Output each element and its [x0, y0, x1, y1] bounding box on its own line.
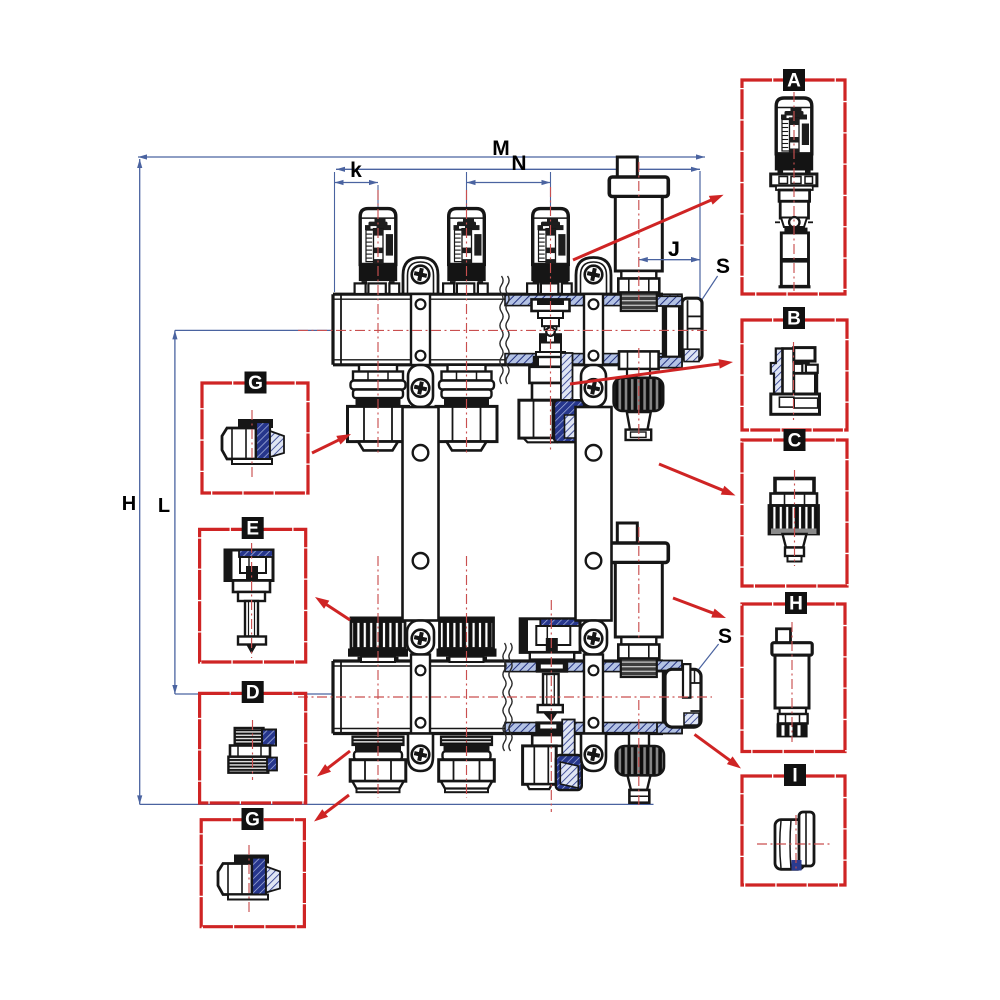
svg-text:J: J — [668, 238, 680, 261]
svg-text:G: G — [245, 810, 260, 831]
svg-text:H: H — [122, 493, 136, 515]
svg-text:C: C — [788, 431, 802, 452]
svg-text:M: M — [492, 137, 510, 160]
svg-text:B: B — [787, 309, 801, 330]
svg-text:I: I — [792, 766, 797, 787]
svg-text:E: E — [246, 519, 259, 540]
svg-text:H: H — [789, 594, 803, 615]
svg-text:L: L — [158, 495, 170, 517]
svg-text:S: S — [716, 255, 730, 278]
svg-text:N: N — [511, 152, 526, 175]
svg-text:G: G — [248, 373, 263, 394]
svg-text:D: D — [246, 683, 260, 704]
svg-text:k: k — [350, 159, 362, 182]
svg-text:S: S — [718, 625, 732, 648]
svg-text:A: A — [787, 71, 801, 92]
